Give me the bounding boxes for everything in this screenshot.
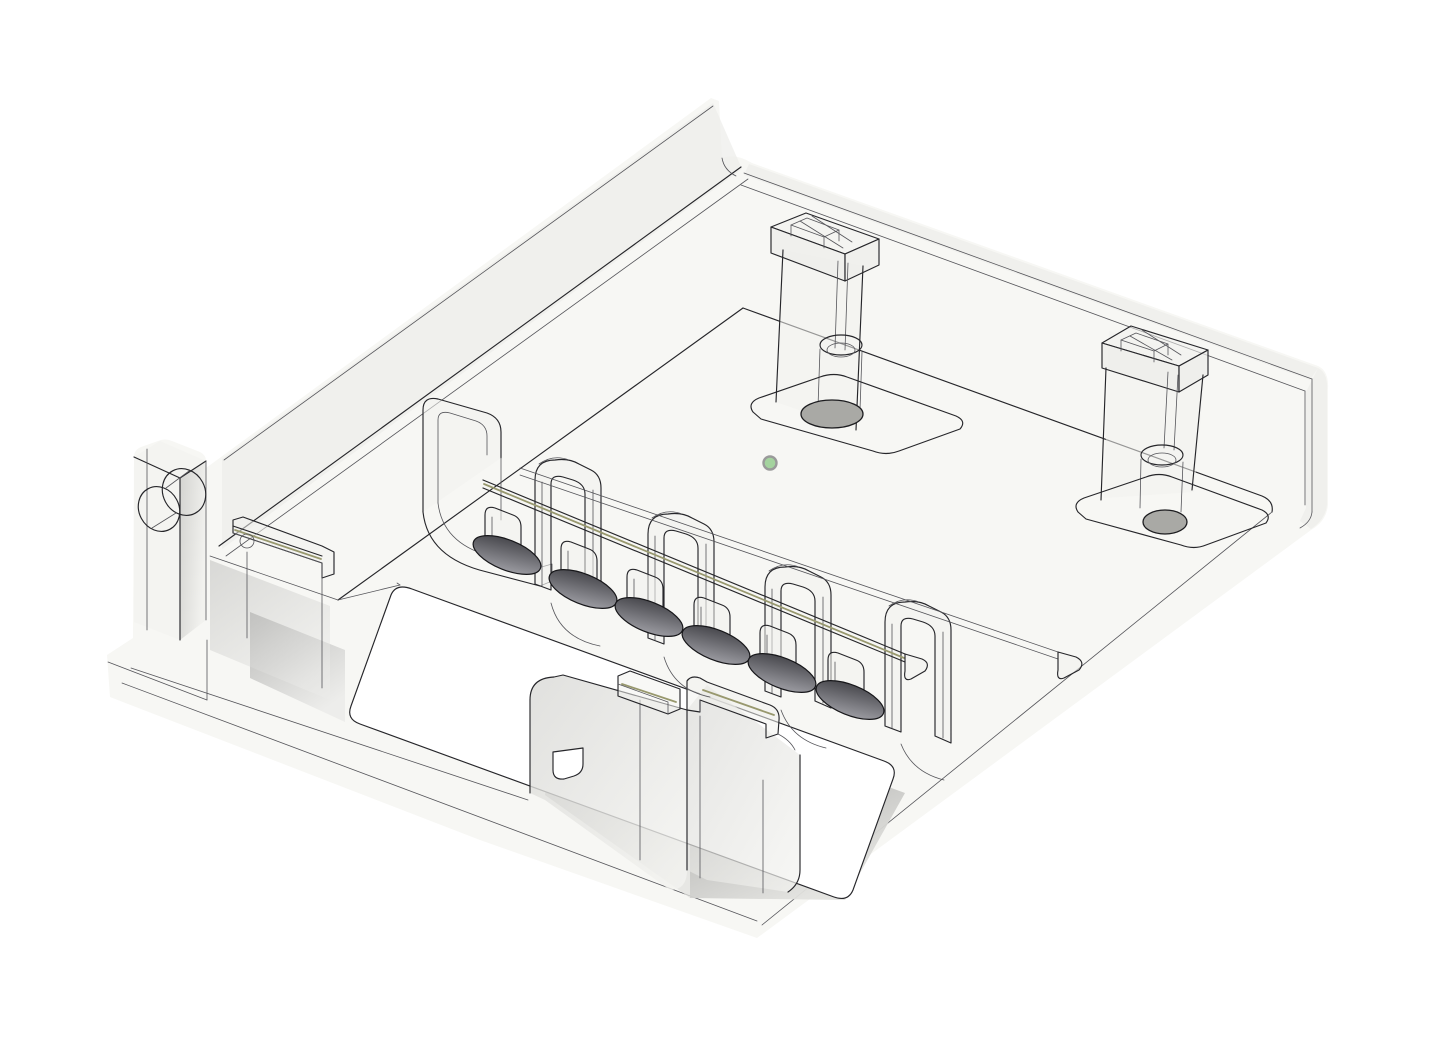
cad-viewport[interactable] — [0, 0, 1438, 1038]
boss-floor-hole-1 — [801, 400, 863, 428]
origin-point-icon[interactable] — [764, 457, 777, 470]
boss-floor-hole-2 — [1143, 510, 1187, 534]
wall-notch-cutout — [553, 748, 583, 779]
cad-canvas[interactable] — [0, 0, 1438, 1038]
